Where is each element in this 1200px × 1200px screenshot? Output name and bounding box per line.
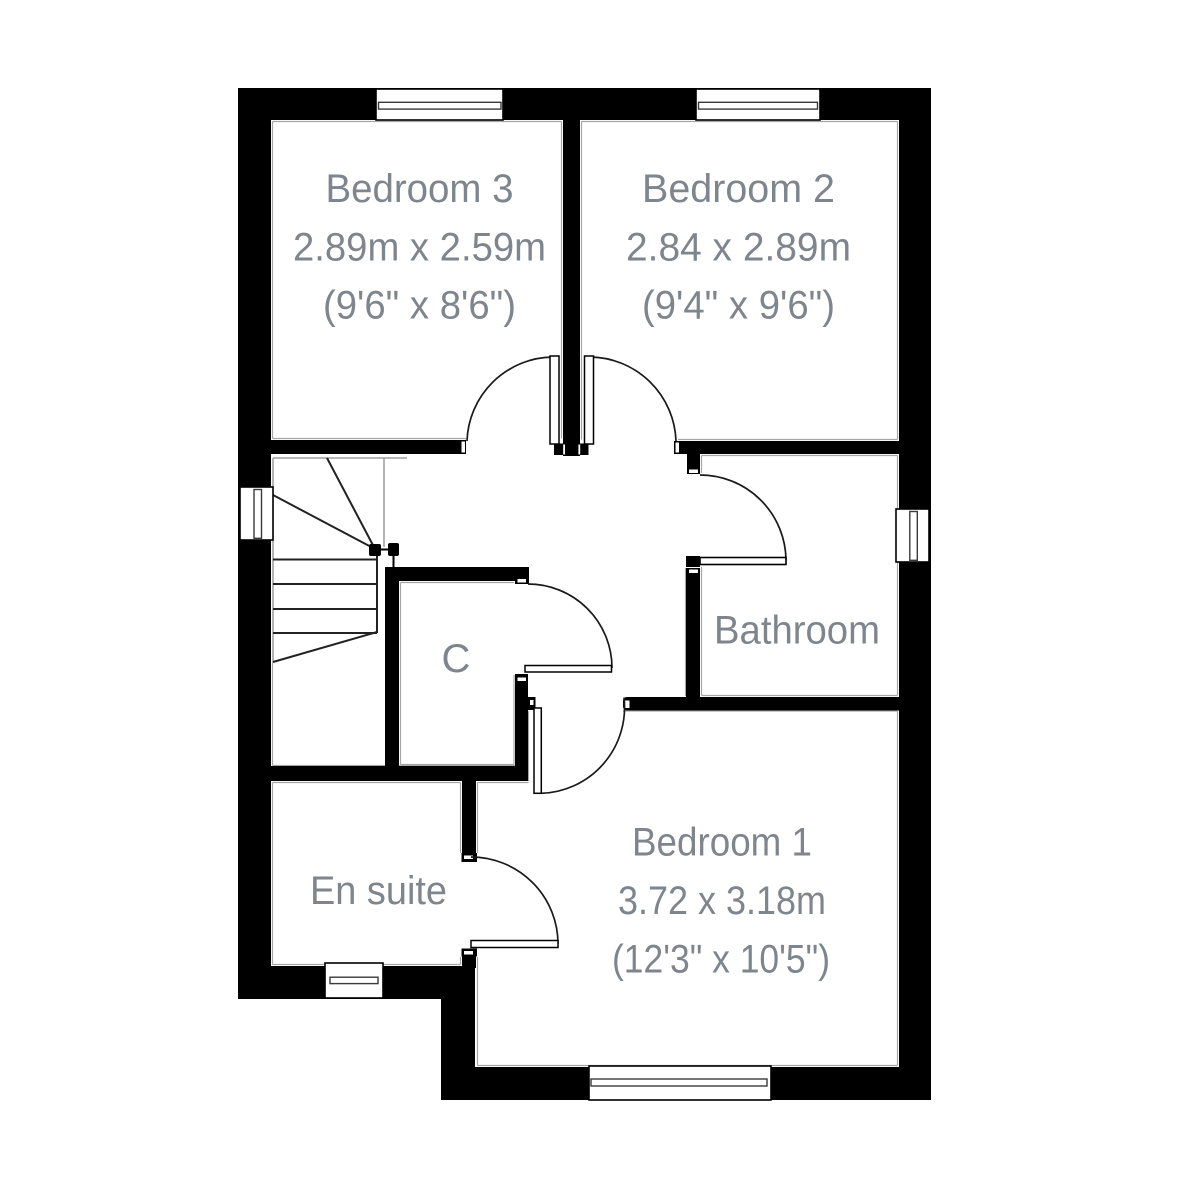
svg-text:C: C [442,637,471,681]
svg-text:(12'3" x 10'5"): (12'3" x 10'5") [612,938,830,982]
svg-text:En suite: En suite [310,869,447,913]
svg-text:(9'4" x 9'6"): (9'4" x 9'6") [642,284,835,328]
svg-text:(9'6" x 8'6"): (9'6" x 8'6") [323,284,516,328]
svg-text:2.89m x 2.59m: 2.89m x 2.59m [293,226,546,270]
svg-text:Bedroom 3: Bedroom 3 [326,167,514,211]
svg-text:Bathroom: Bathroom [714,609,880,653]
svg-text:Bedroom 1: Bedroom 1 [632,821,812,865]
svg-text:Bedroom 2: Bedroom 2 [642,167,835,211]
svg-text:2.84 x 2.89m: 2.84 x 2.89m [626,226,851,270]
svg-text:3.72 x 3.18m: 3.72 x 3.18m [618,879,826,923]
